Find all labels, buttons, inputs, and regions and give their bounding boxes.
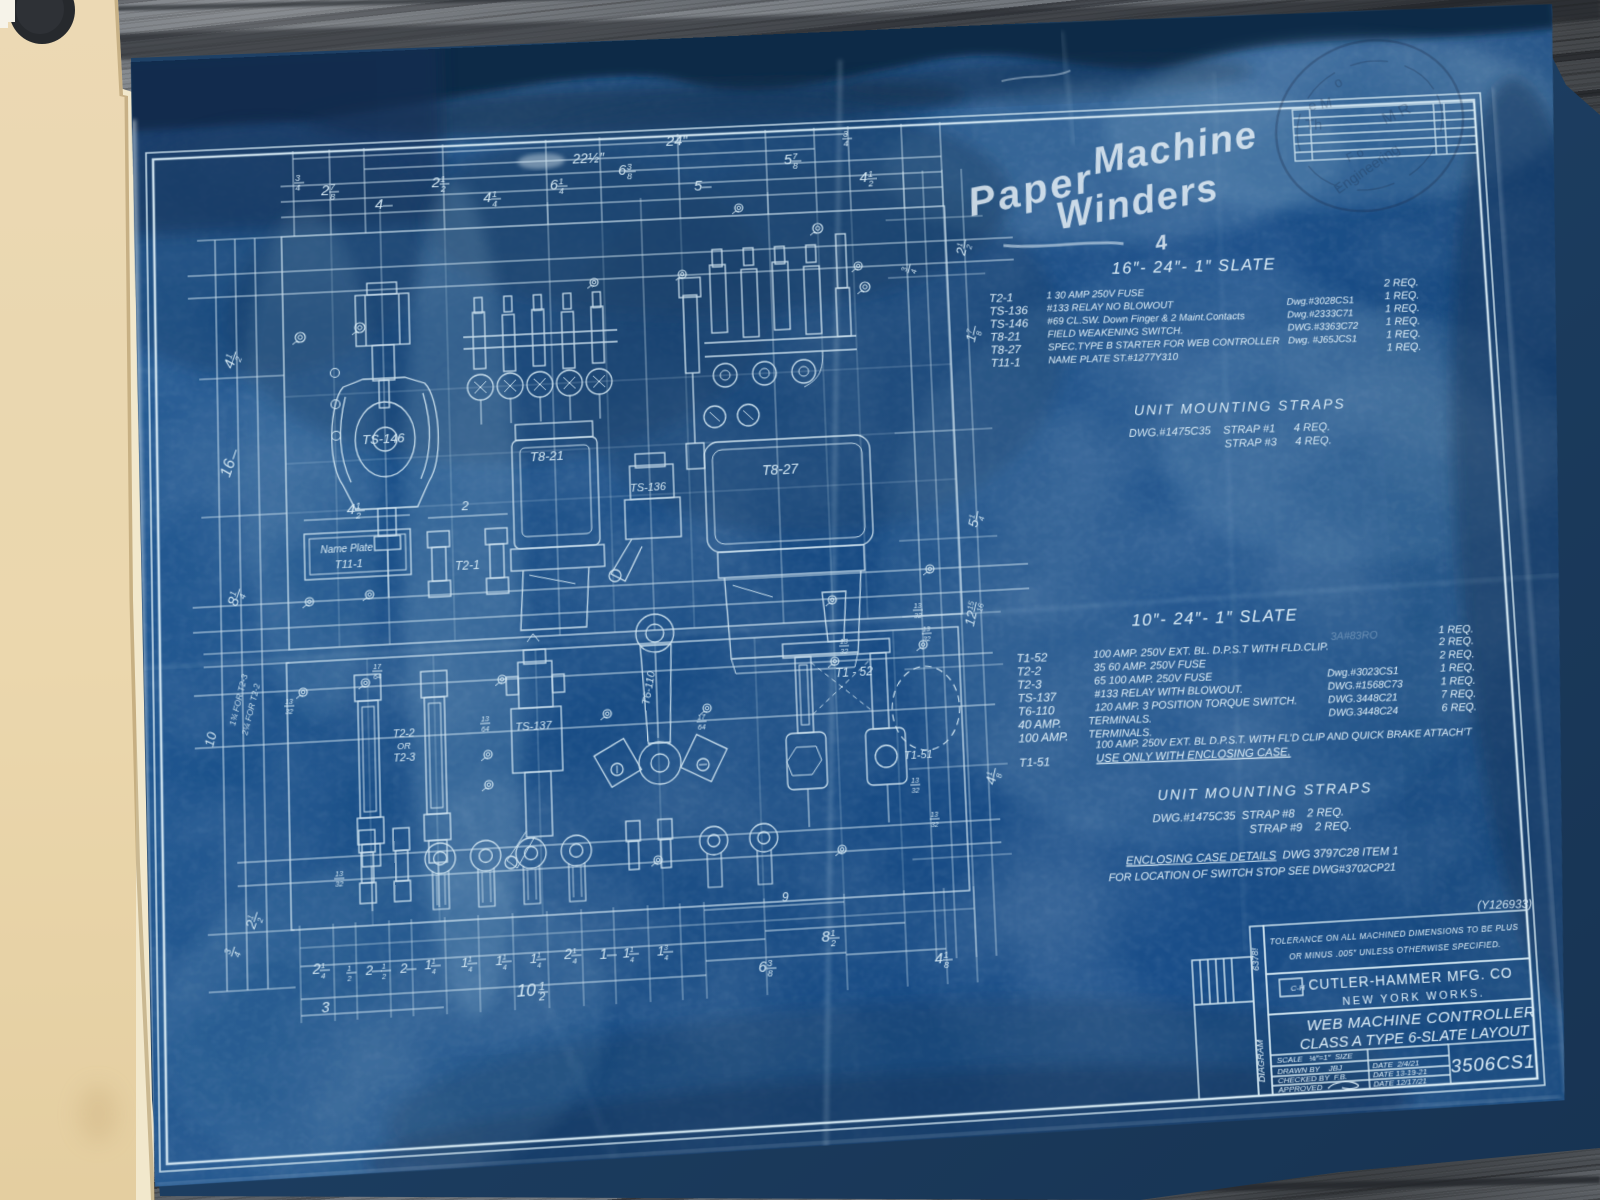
svg-text:T1-51: T1-51 [1019,756,1050,770]
svg-text:4: 4 [934,951,943,968]
svg-text:T8-27: T8-27 [762,461,799,478]
svg-text:2: 2 [867,178,873,188]
svg-text:32: 32 [923,636,931,644]
svg-text:1: 1 [943,949,949,960]
svg-text:1: 1 [492,189,497,199]
svg-text:32: 32 [914,613,922,621]
svg-text:3A#83RO: 3A#83RO [1330,629,1378,643]
svg-text:100 AMP.: 100 AMP. [1018,730,1068,745]
svg-text:C-H: C-H [1290,983,1305,993]
svg-text:1: 1 [440,174,445,184]
svg-text:9: 9 [782,891,790,905]
svg-text:T2-1: T2-1 [989,292,1013,306]
svg-text:2: 2 [538,991,546,1004]
svg-text:3: 3 [321,999,330,1015]
svg-text:OR: OR [397,740,412,751]
svg-text:2: 2 [830,938,837,949]
svg-text:13: 13 [481,716,489,724]
svg-text:2 REQ.: 2 REQ. [1438,635,1474,648]
svg-text:4: 4 [483,190,492,206]
svg-text:4: 4 [537,962,541,970]
svg-text:T2-2: T2-2 [393,728,415,741]
svg-text:2: 2 [460,499,469,514]
svg-text:32: 32 [911,787,919,795]
svg-text:2: 2 [430,175,440,191]
svg-text:T11-1: T11-1 [335,558,363,572]
svg-text:2: 2 [381,974,386,982]
svg-text:40 AMP.: 40 AMP. [1018,717,1062,732]
svg-text:TS-136: TS-136 [989,304,1028,318]
svg-text:5: 5 [694,178,704,194]
svg-text:8: 8 [944,959,950,970]
svg-text:T6-110: T6-110 [1018,704,1055,719]
svg-text:2 REQ.: 2 REQ. [1438,648,1475,661]
svg-text:1 REQ.: 1 REQ. [1386,341,1421,354]
svg-text:13: 13 [930,811,938,819]
svg-text:2: 2 [355,510,361,520]
svg-text:1: 1 [599,946,607,962]
svg-text:3: 3 [295,173,300,183]
svg-text:4: 4 [375,197,384,213]
svg-text:1: 1 [537,952,541,960]
svg-text:4: 4 [347,502,356,519]
svg-text:4: 4 [492,199,497,209]
svg-text:DWG.#3363C72: DWG.#3363C72 [1287,321,1359,334]
svg-text:1: 1 [502,954,506,962]
svg-text:T8-21: T8-21 [990,330,1021,344]
svg-text:Dwg. #J65JCS1: Dwg. #J65JCS1 [1288,334,1357,347]
svg-text:1 REQ.: 1 REQ. [1440,661,1476,674]
svg-text:1 REQ.: 1 REQ. [1384,290,1419,303]
svg-text:4: 4 [295,183,300,193]
svg-text:1: 1 [468,956,472,964]
svg-text:13: 13 [840,639,848,647]
svg-text:8: 8 [330,192,335,202]
svg-text:4: 4 [630,957,634,965]
svg-text:T2-1: T2-1 [455,559,480,574]
svg-text:13: 13 [911,777,919,785]
svg-text:8: 8 [767,968,773,979]
svg-text:TS-146: TS-146 [990,317,1029,331]
svg-text:3: 3 [627,162,632,172]
svg-text:1 REQ.: 1 REQ. [1440,675,1476,688]
svg-text:24″: 24″ [665,133,689,150]
svg-text:Dwg.#2333C71: Dwg.#2333C71 [1287,308,1354,321]
svg-text:TS-136: TS-136 [630,481,666,495]
svg-text:2 REQ.: 2 REQ. [1383,277,1419,290]
svg-text:2: 2 [320,183,330,199]
svg-text:Th: Th [1305,118,1322,134]
svg-text:13: 13 [335,871,343,879]
svg-text:8: 8 [627,171,632,181]
svg-text:T8-21: T8-21 [530,449,564,465]
svg-text:64: 64 [481,726,489,734]
svg-text:22½″: 22½″ [571,150,605,166]
svg-text:1 REQ.: 1 REQ. [1385,302,1420,315]
svg-text:1: 1 [321,961,326,971]
svg-text:4: 4 [559,186,564,196]
svg-text:4: 4 [664,955,668,963]
svg-text:1: 1 [356,500,361,510]
svg-text:6 REQ.: 6 REQ. [1441,701,1477,714]
svg-text:6378!: 6378! [1250,947,1261,971]
svg-text:32: 32 [931,822,939,830]
svg-text:64: 64 [373,674,381,682]
svg-text:2: 2 [364,963,373,978]
svg-text:7 REQ.: 7 REQ. [1441,688,1477,701]
svg-text:13: 13 [914,603,922,611]
svg-text:3: 3 [767,958,773,969]
svg-text:T1-52: T1-52 [1016,651,1048,665]
svg-text:T1-51: T1-51 [904,749,933,763]
svg-text:DWG.3448C21: DWG.3448C21 [1328,692,1398,706]
svg-text:3: 3 [664,945,668,953]
svg-text:17: 17 [373,664,381,672]
svg-text:TS-137: TS-137 [515,719,553,733]
svg-text:1: 1 [382,963,386,971]
svg-text:TERMINALS.: TERMINALS. [1088,713,1152,727]
svg-text:3: 3 [843,129,848,139]
svg-text:T2-3: T2-3 [1017,678,1042,692]
svg-text:T1 - 52: T1 - 52 [835,665,874,680]
svg-text:13: 13 [922,626,930,634]
svg-text:2: 2 [440,184,446,194]
svg-text:4: 4 [503,964,507,972]
svg-text:1: 1 [868,169,873,179]
svg-text:1: 1 [431,958,435,966]
svg-text:17: 17 [697,714,705,722]
svg-text:1: 1 [347,965,351,973]
svg-text:32: 32 [840,648,848,656]
svg-text:T8-27: T8-27 [990,343,1021,357]
svg-text:8: 8 [793,161,798,171]
svg-text:TS-137: TS-137 [1017,691,1057,706]
svg-text:4: 4 [432,969,436,977]
svg-text:1 REQ.: 1 REQ. [1386,328,1421,341]
svg-text:4: 4 [843,138,848,148]
svg-text:1: 1 [630,947,634,955]
svg-text:64: 64 [698,724,706,732]
svg-text:T2-3: T2-3 [393,752,415,765]
svg-text:1: 1 [830,928,836,939]
svg-text:4: 4 [321,971,326,981]
svg-text:1 REQ.: 1 REQ. [1385,315,1420,328]
svg-text:10: 10 [516,980,537,1001]
svg-text:1: 1 [572,946,577,956]
svg-text:1: 1 [558,176,563,186]
svg-text:4: 4 [468,966,472,974]
svg-text:32: 32 [335,881,343,889]
svg-text:32: 32 [285,709,293,717]
svg-text:Dwg.#3028CS1: Dwg.#3028CS1 [1286,295,1354,308]
svg-text:T2-2: T2-2 [1017,665,1042,679]
svg-text:TS-146: TS-146 [362,431,406,447]
svg-text:4: 4 [859,170,868,186]
svg-text:2: 2 [346,976,351,984]
svg-text:13: 13 [285,699,293,707]
svg-text:T11-1: T11-1 [991,356,1021,370]
svg-text:2: 2 [399,961,408,976]
